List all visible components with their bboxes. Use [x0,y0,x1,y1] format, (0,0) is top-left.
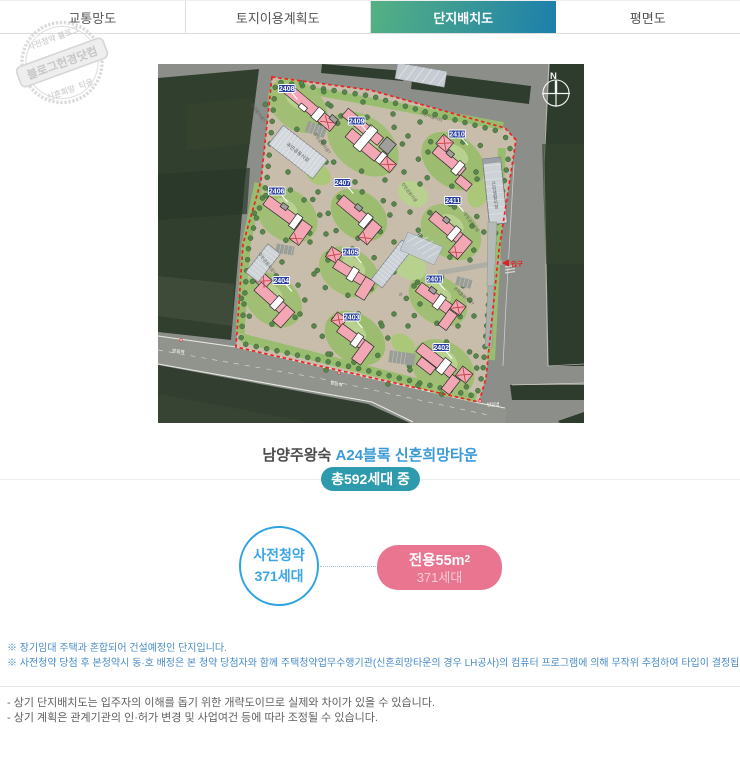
svg-text:2403: 2403 [344,314,360,321]
svg-text:2411: 2411 [445,198,460,205]
svg-text:2405: 2405 [343,249,359,256]
svg-text:2401: 2401 [426,276,442,283]
svg-text:2408: 2408 [279,86,295,93]
svg-text:2402: 2402 [433,345,449,352]
svg-text:2409: 2409 [349,118,365,125]
svg-text:2410: 2410 [449,131,465,138]
svg-text:2406: 2406 [269,188,285,195]
svg-text:2407: 2407 [335,180,351,187]
svg-text:방음벽: 방음벽 [487,401,499,408]
svg-text:입구: 입구 [511,259,523,268]
svg-text:N: N [550,71,557,82]
svg-text:2404: 2404 [273,278,289,285]
